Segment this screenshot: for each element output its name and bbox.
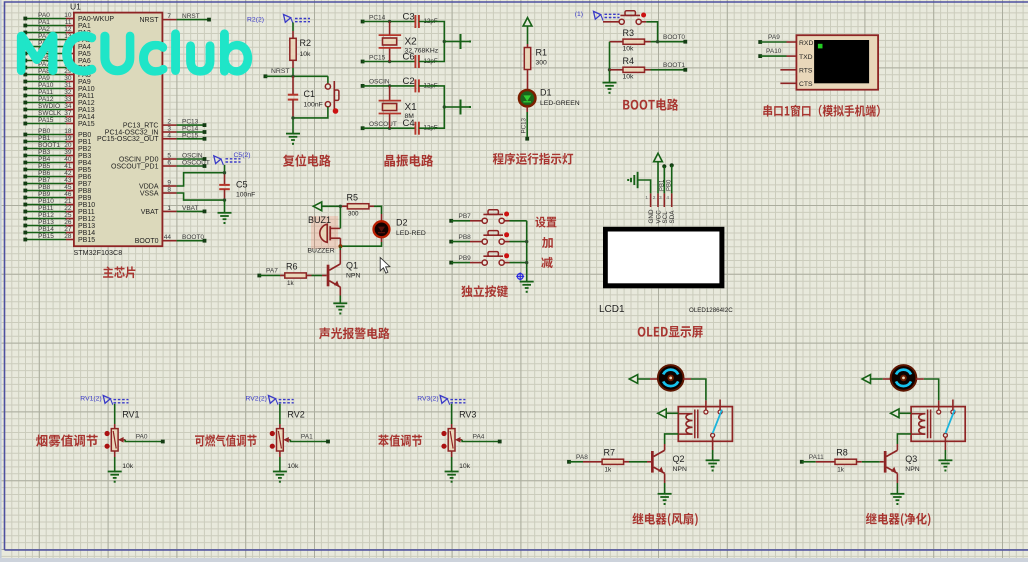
svg-text:PC15-OSC32_OUT: PC15-OSC32_OUT (97, 136, 159, 143)
svg-text:19: 19 (64, 135, 72, 142)
svg-text:PB14: PB14 (38, 226, 54, 233)
svg-text:PB15: PB15 (38, 233, 54, 240)
svg-text:X2: X2 (405, 37, 418, 48)
svg-text:10k: 10k (459, 463, 471, 470)
svg-text:BOOT0: BOOT0 (182, 234, 204, 241)
svg-text:PB10: PB10 (38, 198, 54, 205)
svg-text:LED-GREEN: LED-GREEN (540, 100, 580, 107)
svg-text:PB0: PB0 (667, 179, 673, 191)
svg-text:OSCIN_PD0: OSCIN_PD0 (119, 156, 159, 163)
svg-text:RTS: RTS (799, 68, 813, 75)
svg-text:OSCIN: OSCIN (369, 79, 390, 86)
svg-text:PB8: PB8 (78, 188, 91, 195)
svg-text:25: 25 (64, 212, 72, 219)
svg-text:PA1: PA1 (38, 19, 50, 26)
svg-text:38: 38 (64, 117, 72, 124)
svg-text:PC15: PC15 (182, 132, 199, 139)
svg-text:R5: R5 (347, 193, 359, 203)
svg-text:PB6: PB6 (38, 170, 51, 177)
svg-text:LCD1: LCD1 (599, 304, 625, 315)
svg-text:(1): (1) (575, 11, 583, 18)
svg-text:41: 41 (64, 163, 72, 170)
svg-text:PA0: PA0 (136, 433, 148, 440)
svg-text:NPN: NPN (905, 466, 919, 473)
svg-text:1k: 1k (605, 466, 613, 473)
svg-text:PB10: PB10 (78, 202, 95, 209)
svg-text:RXD: RXD (799, 40, 813, 47)
svg-text:NRST: NRST (271, 68, 290, 75)
svg-text:PA11: PA11 (38, 89, 53, 96)
svg-text:RV1(2): RV1(2) (80, 395, 101, 402)
svg-text:2: 2 (653, 195, 656, 201)
svg-text:1: 1 (167, 205, 171, 212)
svg-text:28: 28 (64, 233, 72, 240)
svg-text:PB13: PB13 (78, 223, 95, 230)
svg-text:PA2: PA2 (38, 26, 50, 33)
svg-text:20: 20 (64, 142, 72, 149)
svg-text:PB5: PB5 (38, 163, 51, 170)
svg-text:6: 6 (167, 160, 171, 167)
svg-text:R3: R3 (623, 28, 635, 38)
svg-text:VBAT: VBAT (141, 209, 159, 216)
svg-text:PA12: PA12 (78, 100, 95, 107)
svg-text:4: 4 (666, 195, 669, 201)
svg-text:PB12: PB12 (38, 212, 54, 219)
svg-text:PB9: PB9 (459, 255, 472, 262)
svg-text:R1: R1 (536, 48, 548, 58)
svg-text:PC14: PC14 (369, 14, 386, 21)
svg-text:BOOT0: BOOT0 (663, 34, 685, 41)
svg-text:PB7: PB7 (78, 181, 91, 188)
svg-text:PA8: PA8 (576, 454, 588, 461)
svg-text:PA10: PA10 (78, 86, 95, 93)
svg-text:NPN: NPN (673, 466, 687, 473)
svg-text:BOOT1: BOOT1 (38, 142, 60, 149)
svg-text:100nF: 100nF (304, 102, 323, 109)
svg-text:PB0: PB0 (78, 132, 91, 139)
svg-text:PA15: PA15 (38, 117, 54, 124)
svg-text:PB9: PB9 (38, 191, 51, 198)
svg-text:U1: U1 (70, 2, 81, 12)
svg-text:PB1: PB1 (78, 139, 91, 146)
svg-text:OSCOUT: OSCOUT (182, 160, 210, 167)
svg-text:BOOT0: BOOT0 (135, 238, 159, 245)
svg-text:C2: C2 (403, 76, 415, 87)
svg-text:BUZZER: BUZZER (308, 248, 335, 255)
svg-text:PB7: PB7 (459, 213, 472, 220)
svg-text:PA10: PA10 (766, 48, 782, 55)
svg-text:300: 300 (348, 211, 359, 218)
svg-text:R4: R4 (623, 56, 635, 66)
svg-text:1k: 1k (837, 466, 845, 473)
svg-text:22: 22 (64, 205, 72, 212)
svg-text:PB3: PB3 (38, 149, 51, 156)
svg-text:PB1: PB1 (38, 135, 51, 142)
svg-text:PA1: PA1 (78, 23, 91, 30)
svg-text:RV3: RV3 (459, 410, 476, 420)
svg-text:PB12: PB12 (78, 216, 95, 223)
svg-text:39: 39 (64, 149, 72, 156)
svg-text:37: 37 (64, 110, 72, 117)
svg-text:PB1: PB1 (659, 179, 665, 191)
svg-text:PB2: PB2 (78, 146, 91, 153)
svg-text:PA9: PA9 (768, 34, 780, 41)
svg-text:CTS: CTS (799, 81, 813, 88)
svg-text:GND: GND (648, 209, 655, 223)
svg-text:R2: R2 (300, 38, 312, 48)
svg-text:PB5: PB5 (78, 167, 91, 174)
svg-text:D1: D1 (540, 88, 552, 98)
svg-text:Q2: Q2 (673, 454, 685, 464)
svg-text:PB4: PB4 (78, 160, 91, 167)
svg-text:PB3: PB3 (78, 153, 91, 160)
svg-text:VDDA: VDDA (139, 183, 159, 190)
svg-text:PB15: PB15 (78, 237, 95, 244)
svg-text:PA9: PA9 (38, 75, 50, 82)
svg-text:10k: 10k (623, 46, 635, 53)
svg-text:R8: R8 (836, 448, 848, 458)
svg-text:VSSA: VSSA (140, 190, 159, 197)
svg-text:PA9: PA9 (78, 79, 91, 86)
svg-text:PA13: PA13 (78, 107, 95, 114)
svg-text:C1: C1 (304, 89, 316, 99)
svg-text:11: 11 (65, 19, 72, 26)
svg-text:PA11: PA11 (78, 93, 94, 100)
svg-text:C5(2): C5(2) (234, 152, 251, 159)
svg-text:40: 40 (64, 156, 72, 163)
svg-text:R2(2): R2(2) (247, 17, 264, 24)
svg-text:46: 46 (64, 191, 72, 198)
svg-text:31: 31 (64, 82, 72, 89)
svg-text:C4: C4 (403, 118, 415, 129)
svg-text:PA12: PA12 (38, 96, 54, 103)
svg-text:PC13: PC13 (520, 117, 527, 133)
svg-text:VBAT: VBAT (182, 205, 199, 212)
svg-text:PB11: PB11 (78, 209, 95, 216)
svg-text:PA15: PA15 (78, 121, 95, 128)
svg-text:300: 300 (536, 60, 548, 67)
svg-text:33: 33 (64, 96, 72, 103)
svg-text:18: 18 (64, 128, 72, 135)
svg-text:45: 45 (64, 184, 72, 191)
svg-text:OSCOUT: OSCOUT (369, 121, 397, 128)
svg-text:PB11: PB11 (38, 205, 54, 212)
svg-text:X1: X1 (405, 102, 418, 113)
svg-text:43: 43 (64, 177, 72, 184)
svg-text:PA4: PA4 (473, 433, 485, 440)
svg-text:SWCLK: SWCLK (38, 110, 62, 117)
svg-text:R7: R7 (604, 448, 616, 458)
svg-text:OSCOUT_PD1: OSCOUT_PD1 (111, 163, 159, 170)
svg-text:RV3(2): RV3(2) (417, 395, 438, 402)
svg-text:7: 7 (167, 13, 171, 20)
svg-text:SCL: SCL (662, 211, 669, 224)
svg-text:PA14: PA14 (78, 114, 95, 121)
svg-text:PA10: PA10 (38, 82, 54, 89)
svg-text:C6: C6 (403, 52, 415, 63)
svg-text:44: 44 (164, 234, 172, 241)
svg-text:100nF: 100nF (236, 192, 255, 199)
svg-text:SWDIO: SWDIO (38, 103, 60, 110)
svg-text:TXD: TXD (799, 54, 813, 61)
svg-text:10k: 10k (300, 51, 312, 58)
svg-text:10k: 10k (623, 74, 635, 81)
svg-text:OSCIN: OSCIN (182, 153, 203, 160)
svg-text:30: 30 (64, 75, 72, 82)
svg-text:PB8: PB8 (38, 184, 51, 191)
svg-text:34: 34 (64, 103, 72, 110)
svg-text:10: 10 (64, 12, 72, 19)
svg-text:4: 4 (167, 132, 171, 139)
svg-text:27: 27 (64, 226, 72, 233)
svg-text:5: 5 (167, 153, 171, 160)
svg-text:BOOT1: BOOT1 (663, 62, 685, 69)
svg-text:Q1: Q1 (346, 261, 358, 271)
svg-text:OLED12864I2C: OLED12864I2C (689, 307, 733, 314)
svg-text:PA4: PA4 (78, 44, 91, 51)
svg-text:PA7: PA7 (266, 268, 278, 275)
svg-text:PB14: PB14 (78, 230, 95, 237)
svg-text:RV2: RV2 (287, 410, 304, 420)
svg-text:PA11: PA11 (809, 454, 824, 461)
svg-text:PB9: PB9 (78, 195, 91, 202)
svg-text:PA0: PA0 (38, 12, 50, 19)
svg-text:10k: 10k (287, 463, 299, 470)
svg-text:PB7: PB7 (38, 177, 51, 184)
svg-text:42: 42 (64, 170, 72, 177)
svg-text:STM32F103C8: STM32F103C8 (74, 248, 123, 257)
svg-text:SDA: SDA (669, 210, 676, 224)
svg-text:RV1: RV1 (122, 410, 139, 420)
svg-text:C5: C5 (236, 180, 248, 190)
svg-text:PA6: PA6 (78, 58, 91, 65)
svg-text:PA5: PA5 (78, 51, 91, 58)
svg-text:PB4: PB4 (38, 156, 51, 163)
svg-text:NPN: NPN (346, 273, 360, 280)
svg-text:PB13: PB13 (38, 219, 54, 226)
svg-text:3: 3 (659, 195, 662, 201)
svg-text:32: 32 (64, 89, 72, 96)
svg-text:26: 26 (64, 219, 72, 226)
svg-text:Q3: Q3 (905, 454, 917, 464)
svg-text:12: 12 (64, 26, 72, 33)
svg-text:10k: 10k (122, 463, 134, 470)
svg-text:PA0-WKUP: PA0-WKUP (78, 16, 114, 23)
svg-text:1k: 1k (287, 280, 295, 287)
svg-text:RV2(2): RV2(2) (245, 395, 266, 402)
svg-text:PB8: PB8 (459, 234, 472, 241)
svg-text:D2: D2 (396, 218, 408, 228)
svg-text:NRST: NRST (182, 13, 200, 20)
svg-text:C3: C3 (403, 12, 415, 23)
svg-text:PC15: PC15 (369, 54, 386, 61)
svg-text:PB0: PB0 (38, 128, 51, 135)
svg-text:1: 1 (645, 195, 648, 201)
svg-text:PA1: PA1 (301, 433, 313, 440)
svg-text:NRST: NRST (139, 17, 159, 24)
svg-text:R6: R6 (286, 262, 298, 272)
svg-text:21: 21 (64, 198, 72, 205)
svg-text:PB6: PB6 (78, 174, 91, 181)
svg-text:LED-RED: LED-RED (396, 230, 426, 237)
